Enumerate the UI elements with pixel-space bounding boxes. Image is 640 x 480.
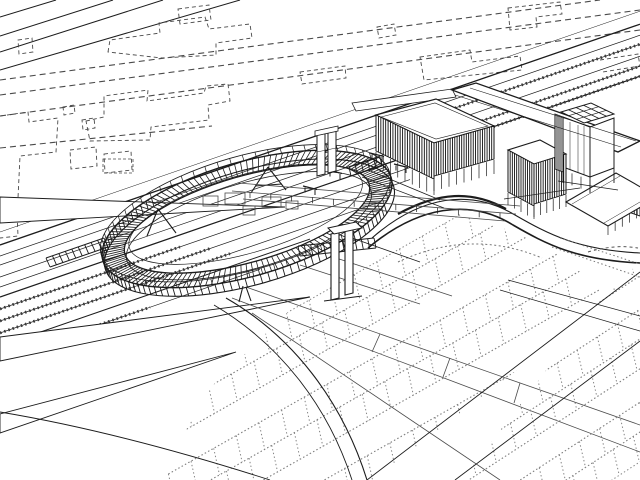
road-ramps [0,197,310,433]
pavement-joints [232,256,640,480]
station-buildings [250,83,640,301]
elliptical-walkway-ring [85,117,409,324]
parking-lot-left [121,174,639,480]
architectural-drawing [0,0,640,480]
drawing-svg [0,0,640,480]
parking-lot-right [386,202,640,480]
